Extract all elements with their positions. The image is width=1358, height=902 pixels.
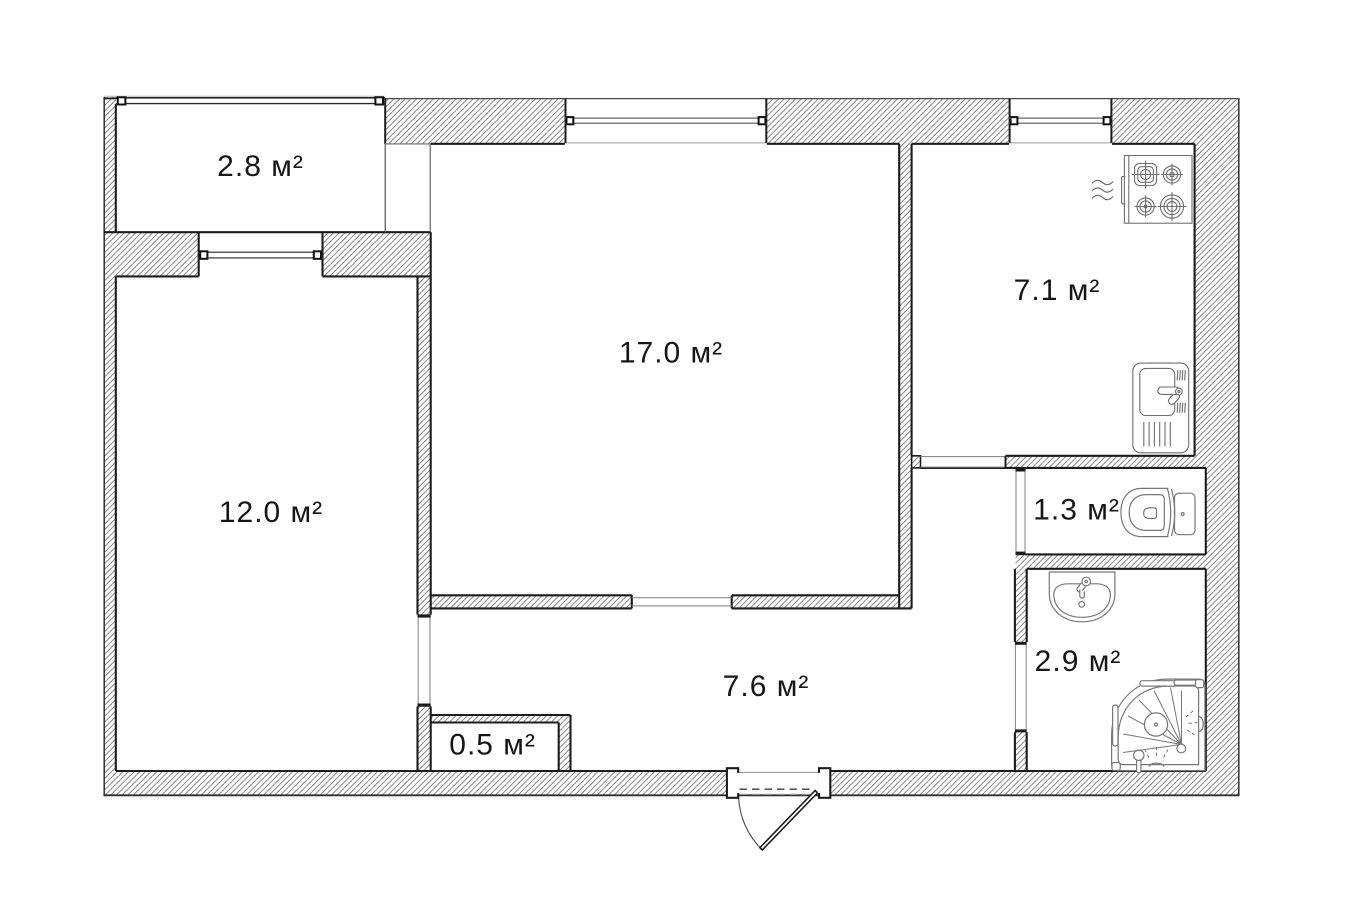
svg-text:2.9 м²: 2.9 м² [1035, 645, 1122, 678]
svg-text:7.6 м²: 7.6 м² [723, 670, 810, 703]
svg-text:12.0 м²: 12.0 м² [219, 496, 323, 529]
svg-text:7.1 м²: 7.1 м² [1014, 274, 1101, 307]
svg-text:2.8 м²: 2.8 м² [217, 150, 304, 183]
svg-text:1.3 м²: 1.3 м² [1033, 493, 1120, 526]
svg-text:17.0 м²: 17.0 м² [619, 336, 723, 369]
svg-text:0.5 м²: 0.5 м² [449, 729, 536, 762]
